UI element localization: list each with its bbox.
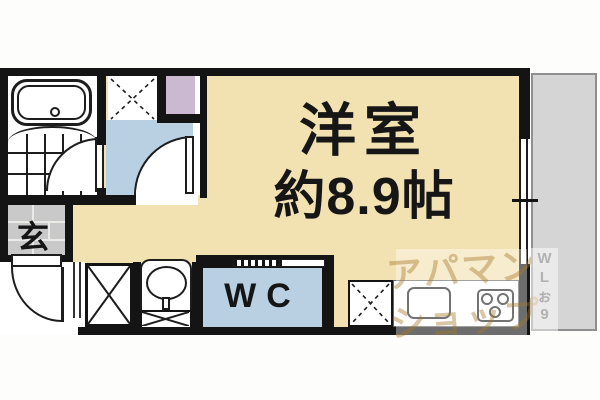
- watermark-side-letters: W L ぉ 9: [531, 250, 558, 325]
- entrance-door-jamb: [61, 267, 64, 322]
- crosshatch-icon: [142, 312, 189, 326]
- room-label: 洋室 約8.9帖: [204, 103, 524, 223]
- wall: [192, 262, 203, 335]
- wall: [0, 195, 136, 205]
- wall: [322, 262, 334, 335]
- watermark: アパマン ショップ: [385, 242, 535, 349]
- wc-label: WC: [203, 277, 322, 316]
- washroom-door-leaf: [185, 136, 194, 194]
- closet: [85, 263, 133, 327]
- dashed-x-icon: [350, 282, 391, 325]
- washing-machine-space: [108, 76, 157, 122]
- bathroom-door-leaf: [95, 137, 104, 192]
- wall: [0, 68, 8, 262]
- wall-edge: [193, 120, 200, 195]
- watermark-side-letter: 9: [531, 306, 558, 325]
- watermark-side-letter: W: [531, 250, 558, 269]
- wall: [65, 205, 73, 262]
- genkan: 玄: [8, 205, 65, 257]
- toilet-room: WC: [203, 268, 322, 327]
- door-jamb-line: [73, 262, 75, 318]
- dashed-x-icon: [108, 76, 157, 122]
- washbasin-step: [140, 310, 192, 329]
- sliding-door-panel: [233, 259, 280, 267]
- washbasin-bowl: [146, 266, 187, 300]
- entrance-door-leaf: [11, 254, 62, 267]
- bathtub-drain-icon: [50, 107, 60, 117]
- wall: [157, 68, 166, 117]
- watermark-side-letter: ぉ: [531, 288, 558, 307]
- tile-line: [26, 134, 28, 195]
- door-jamb-line: [79, 262, 81, 318]
- wall: [0, 68, 530, 76]
- washbasin-stem: [162, 297, 170, 310]
- closet-x-icon: [88, 266, 130, 324]
- floorplan: 玄 WC: [0, 0, 600, 400]
- room-name: 洋室: [204, 103, 524, 160]
- room-size: 約8.9帖: [204, 171, 524, 223]
- genkan-label: 玄: [17, 212, 49, 258]
- watermark-side-letter: L: [531, 269, 558, 288]
- sliding-door-pocket: [281, 259, 325, 267]
- pipe-space: [166, 76, 195, 116]
- wall: [97, 68, 106, 145]
- watermark-line2: ショップ: [388, 291, 535, 350]
